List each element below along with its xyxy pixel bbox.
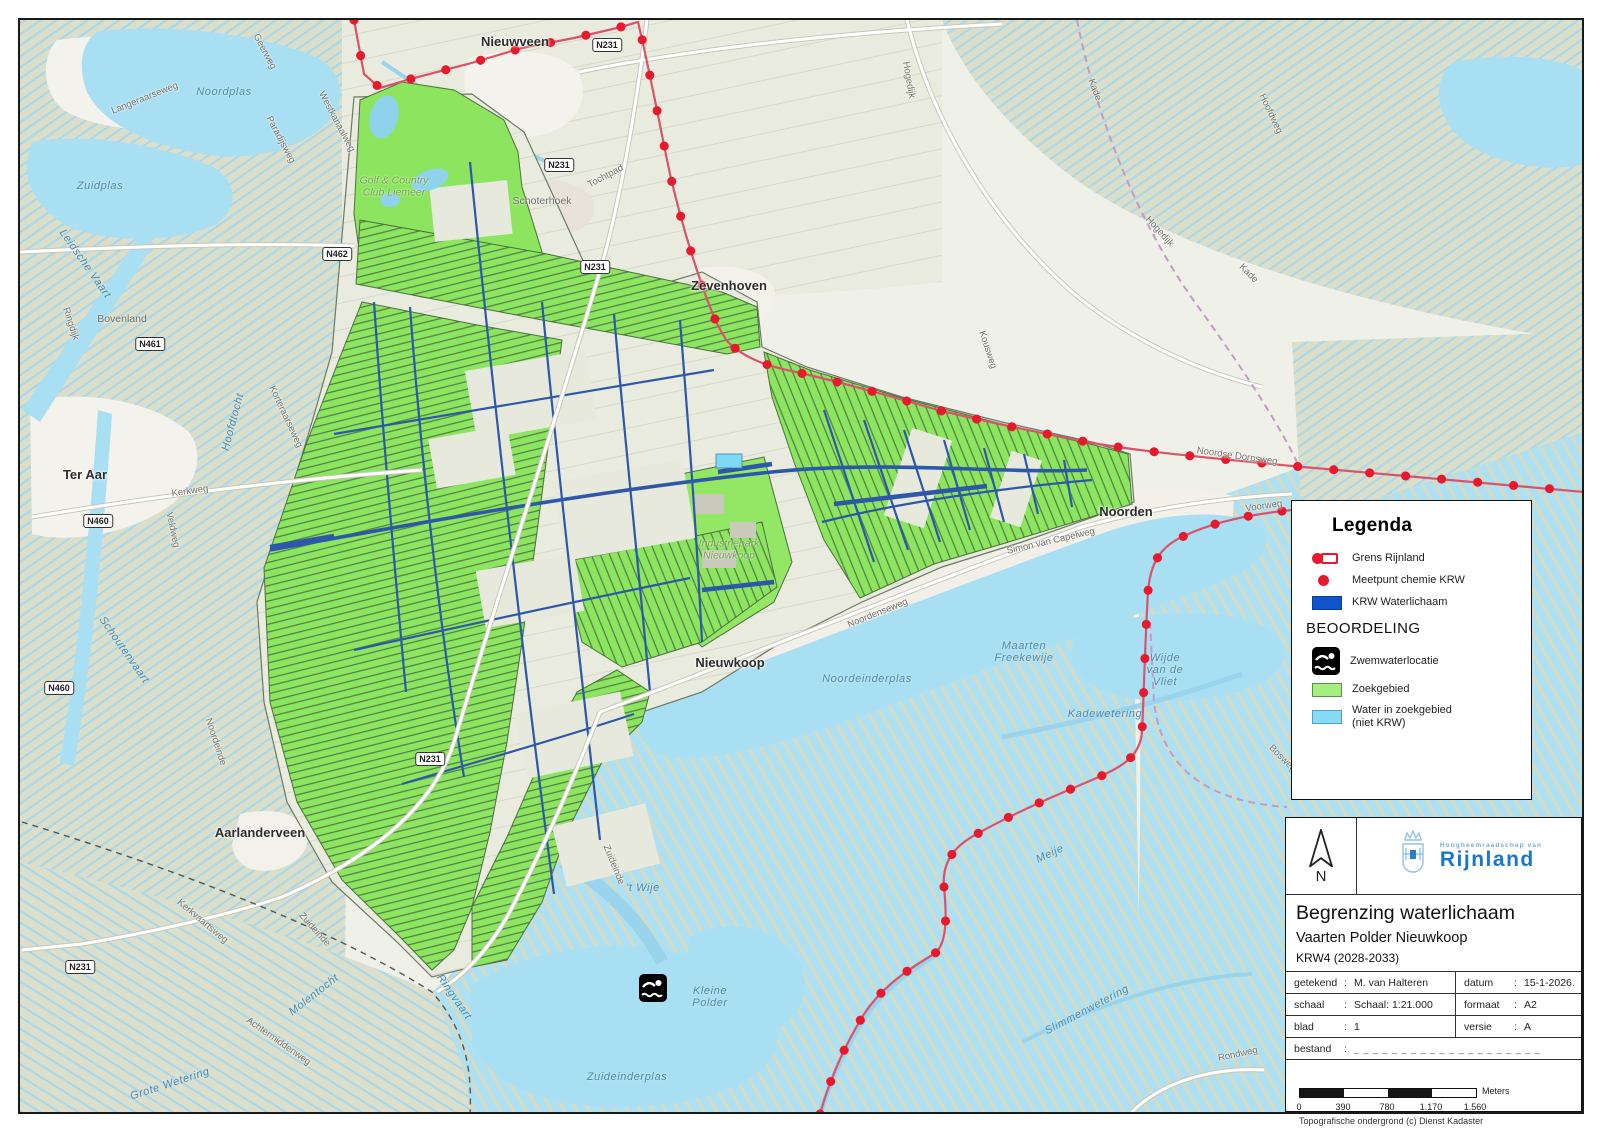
- legend-title: Legenda: [1332, 515, 1521, 537]
- north-arrow: N: [1286, 818, 1357, 894]
- krw-waterlichaam-swatch: [1312, 596, 1342, 610]
- rijnland-crest-icon: [1396, 830, 1430, 882]
- legend-item-grens: Grens Rijnland: [1312, 551, 1521, 566]
- blad-value: 1: [1354, 1021, 1360, 1033]
- attribution: Topografische ondergrond (c) Dienst Kada…: [1299, 1116, 1483, 1126]
- legend-item-zwemwater: Zwemwaterlocatie: [1312, 647, 1521, 675]
- legend-item-water-niet-krw: Water in zoekgebied (niet KRW): [1312, 704, 1521, 729]
- zoekgebied-swatch: [1312, 683, 1342, 697]
- legend-item-meetpunt: Meetpunt chemie KRW: [1312, 573, 1521, 588]
- legend-box: Legenda Grens Rijnland Meetpunt chemie K…: [1291, 500, 1532, 800]
- formaat-value: A2: [1524, 999, 1537, 1011]
- grens-rijnland-icon: [1312, 553, 1342, 564]
- datum-value: 15-1-2026.: [1524, 977, 1575, 989]
- zwemwaterlocatie-icon: [1312, 647, 1340, 675]
- map-period: KRW4 (2028-2033): [1296, 951, 1571, 965]
- scale-bar: 0 390 780 1.170 1.560 Meters Topografisc…: [1286, 1060, 1581, 1131]
- legend-section-heading: BEOORDELING: [1306, 620, 1521, 637]
- map-sheet: NieuwveenZevenhovenNoordenNieuwkoopTer A…: [0, 0, 1600, 1131]
- water-in-zoekgebied-swatch: [1312, 710, 1342, 724]
- water-niet-krw-area: [716, 454, 742, 468]
- versie-value: A: [1524, 1021, 1531, 1033]
- zwemwaterlocatie-icon: [639, 974, 667, 1002]
- legend-item-krw: KRW Waterlichaam: [1312, 595, 1521, 610]
- bestand-value: _ _ _ _ _ _ _ _ _ _ _ _ _ _ _ _ _ _ _ _: [1354, 1044, 1541, 1054]
- rijnland-logo: Hoogheemraadschap van Rijnland: [1357, 818, 1581, 894]
- map-title: Begrenzing waterlichaam: [1296, 902, 1571, 925]
- legend-item-zoekgebied: Zoekgebied: [1312, 682, 1521, 697]
- meetpunt-chemie-icon: [1312, 575, 1342, 586]
- map-subtitle: Vaarten Polder Nieuwkoop: [1296, 930, 1571, 946]
- title-block: N Hoogheemraadschap van Rijnland Be: [1285, 817, 1582, 1112]
- getekend-value: M. van Halteren: [1354, 977, 1428, 989]
- schaal-value: Schaal: 1:21.000: [1354, 999, 1433, 1011]
